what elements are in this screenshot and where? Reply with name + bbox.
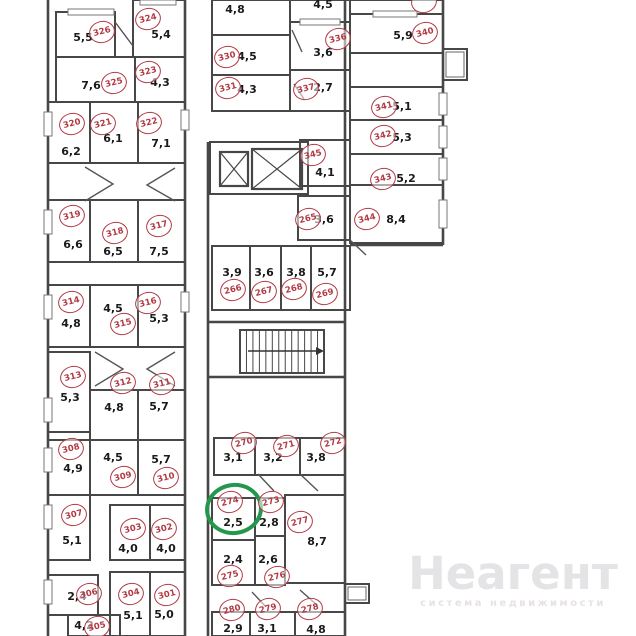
- room-319-number-circle[interactable]: 319: [57, 202, 88, 230]
- room-303-number-circle[interactable]: 303: [118, 515, 149, 543]
- room-313-number-circle[interactable]: 313: [58, 363, 89, 391]
- watermark: Неагент система недвижимости: [394, 550, 632, 609]
- room-314-area-label: 4,8: [53, 316, 89, 331]
- room-280-area-label: 2,9: [215, 621, 251, 636]
- room-278-area-label: 4,8: [298, 622, 334, 636]
- room-266-number-circle[interactable]: 266: [218, 276, 249, 304]
- room-314-number-circle[interactable]: 314: [56, 288, 87, 316]
- room-305-number-circle[interactable]: 305: [82, 613, 113, 636]
- floorplan-image: 5,53265,43247,63254,33236,23206,13217,13…: [0, 0, 636, 636]
- room-267-number-circle[interactable]: 267: [249, 278, 280, 306]
- room-313-area-label: 5,3: [52, 390, 88, 405]
- room-303-area-label: 4,0: [110, 541, 146, 556]
- room-318-area-label: 6,5: [95, 244, 131, 259]
- room-330-number-circle[interactable]: 330: [212, 43, 243, 71]
- room-318-number-circle[interactable]: 318: [100, 219, 131, 247]
- room-310-number-circle[interactable]: 310: [151, 464, 182, 492]
- room-345-area-label: 4,1: [307, 165, 343, 180]
- room-276-number-circle[interactable]: 276: [262, 563, 293, 591]
- room-266-area-label: 3,9: [214, 265, 250, 280]
- room-307-number-circle[interactable]: 307: [59, 501, 90, 529]
- room-309-area-label: 4,5: [95, 450, 131, 465]
- room-307-area-label: 5,1: [54, 533, 90, 548]
- room-312-number-circle[interactable]: 312: [108, 369, 139, 397]
- room-343-number-circle[interactable]: 343: [368, 165, 399, 193]
- room-308-number-circle[interactable]: 308: [56, 435, 87, 463]
- room-341-number-circle[interactable]: 341: [369, 93, 400, 121]
- room-265-number-circle[interactable]: 265: [293, 205, 324, 233]
- room-320-number-circle[interactable]: 320: [57, 110, 88, 138]
- watermark-logo-text: Неагент: [394, 550, 632, 597]
- room-276-area-label: 2,6: [250, 552, 286, 567]
- room-274-area-label: 2,5: [215, 515, 251, 530]
- cut-room-number-circle-0[interactable]: [409, 0, 440, 16]
- room-317-area-label: 7,5: [141, 244, 177, 259]
- watermark-tagline: система недвижимости: [394, 598, 632, 609]
- room-319-area-label: 6,6: [55, 237, 91, 252]
- cut-room-area-label-0: 4,8: [217, 2, 253, 17]
- room-273-area-label: 2,8: [251, 515, 287, 530]
- room-labels-overlay: 5,53265,43247,63254,33236,23206,13217,13…: [0, 0, 636, 636]
- room-304-number-circle[interactable]: 304: [116, 580, 147, 608]
- room-302-number-circle[interactable]: 302: [149, 515, 180, 543]
- room-344-number-circle[interactable]: 344: [352, 205, 383, 233]
- room-301-number-circle[interactable]: 301: [152, 581, 183, 609]
- room-277-area-label: 8,7: [299, 534, 335, 549]
- room-342-number-circle[interactable]: 342: [368, 122, 399, 150]
- room-308-area-label: 4,9: [55, 461, 91, 476]
- room-322-area-label: 7,1: [143, 136, 179, 151]
- room-309-number-circle[interactable]: 309: [108, 463, 139, 491]
- room-302-area-label: 4,0: [148, 541, 184, 556]
- room-312-area-label: 4,8: [96, 400, 132, 415]
- room-269-area-label: 5,7: [309, 265, 345, 280]
- room-322-number-circle[interactable]: 322: [134, 109, 165, 137]
- room-310-area-label: 5,7: [143, 452, 179, 467]
- room-280-number-circle[interactable]: 280: [217, 596, 248, 624]
- cut-room-area-label-1: 4,5: [305, 0, 341, 12]
- room-331-number-circle[interactable]: 331: [213, 74, 244, 102]
- room-279-area-label: 3,1: [249, 621, 285, 636]
- room-311-number-circle[interactable]: 311: [147, 370, 178, 398]
- room-278-number-circle[interactable]: 278: [295, 595, 326, 623]
- room-320-area-label: 6,2: [53, 144, 89, 159]
- room-279-number-circle[interactable]: 279: [253, 595, 284, 623]
- room-269-number-circle[interactable]: 269: [310, 280, 341, 308]
- room-277-number-circle[interactable]: 277: [285, 508, 316, 536]
- room-311-area-label: 5,7: [141, 399, 177, 414]
- room-344-area-label: 8,4: [378, 212, 414, 227]
- room-317-number-circle[interactable]: 317: [144, 212, 175, 240]
- room-301-area-label: 5,0: [146, 607, 182, 622]
- room-267-area-label: 3,6: [246, 265, 282, 280]
